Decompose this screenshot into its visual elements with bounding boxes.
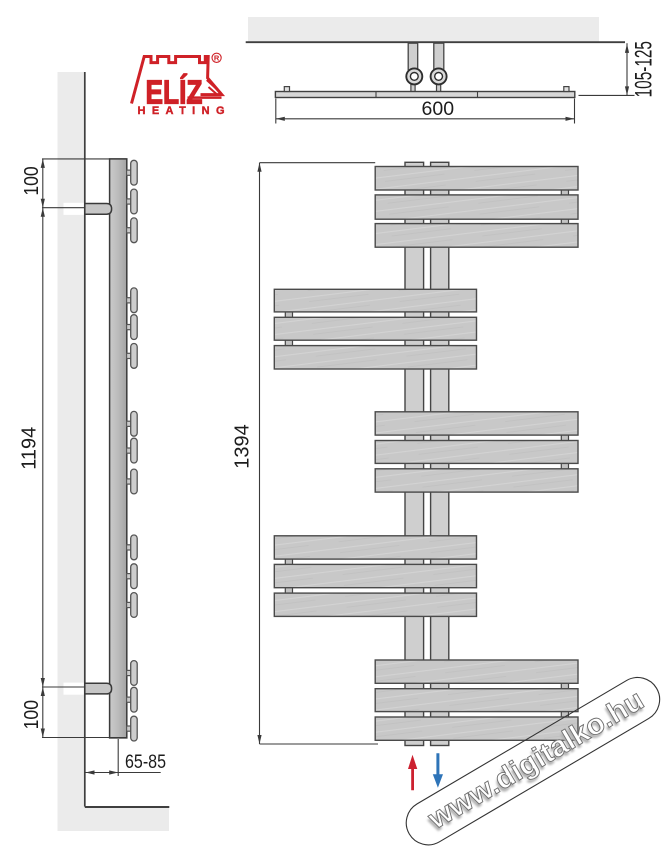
svg-text:100: 100: [20, 700, 42, 729]
svg-text:65-85: 65-85: [125, 752, 166, 773]
svg-text:105-125: 105-125: [631, 41, 657, 97]
svg-text:600: 600: [422, 98, 455, 120]
svg-text:1194: 1194: [19, 427, 41, 470]
svg-text:R: R: [214, 54, 220, 63]
svg-text:1394: 1394: [232, 424, 254, 469]
svg-text:100: 100: [20, 166, 42, 195]
